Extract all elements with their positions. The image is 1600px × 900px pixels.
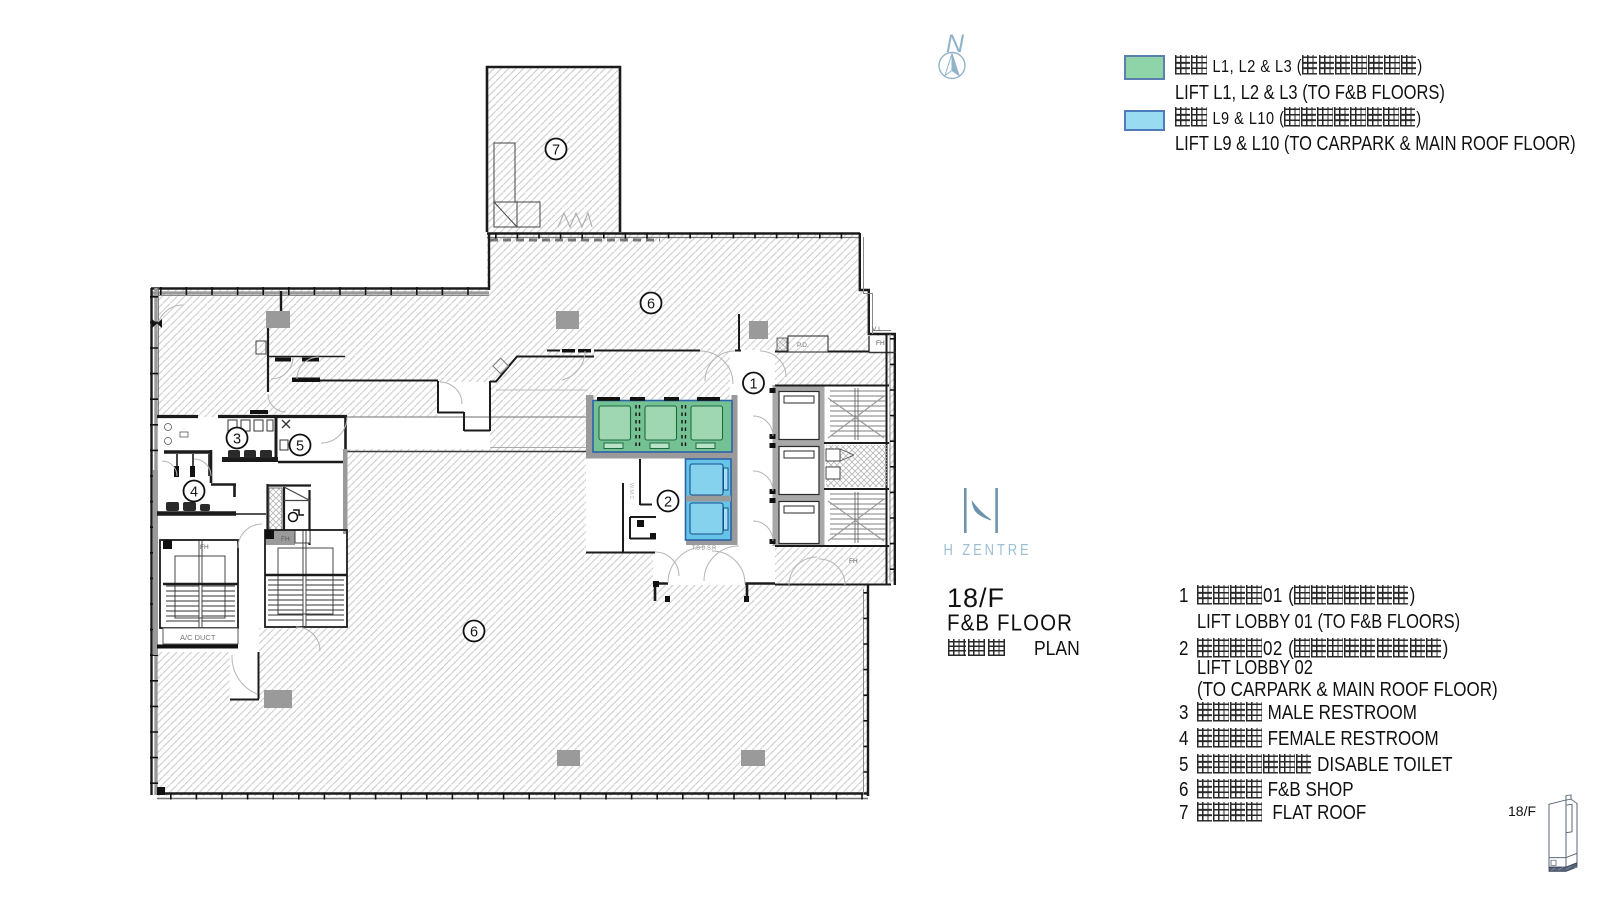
svg-text:FH: FH: [200, 544, 209, 551]
svg-text:6: 6: [647, 297, 655, 313]
svg-text:4: 4: [190, 485, 198, 501]
svg-text:A/C DUCT: A/C DUCT: [180, 633, 216, 642]
svg-text:7: 7: [552, 143, 560, 159]
svg-text:W.M.C: W.M.C: [628, 483, 634, 500]
svg-text:6: 6: [470, 625, 478, 641]
svg-text:FH: FH: [281, 536, 290, 543]
svg-text:FH: FH: [876, 340, 885, 347]
svg-text:2: 2: [664, 495, 672, 511]
svg-text:P.D.: P.D.: [797, 342, 809, 349]
svg-text:V L: V L: [872, 326, 882, 333]
svg-text:1: 1: [749, 377, 757, 393]
svg-text:3: 3: [233, 432, 241, 448]
svg-text:H ZENTRE: H ZENTRE: [944, 542, 1032, 559]
svg-text:N: N: [946, 30, 965, 58]
svg-text:FH: FH: [849, 558, 858, 565]
svg-text:5: 5: [296, 439, 304, 455]
